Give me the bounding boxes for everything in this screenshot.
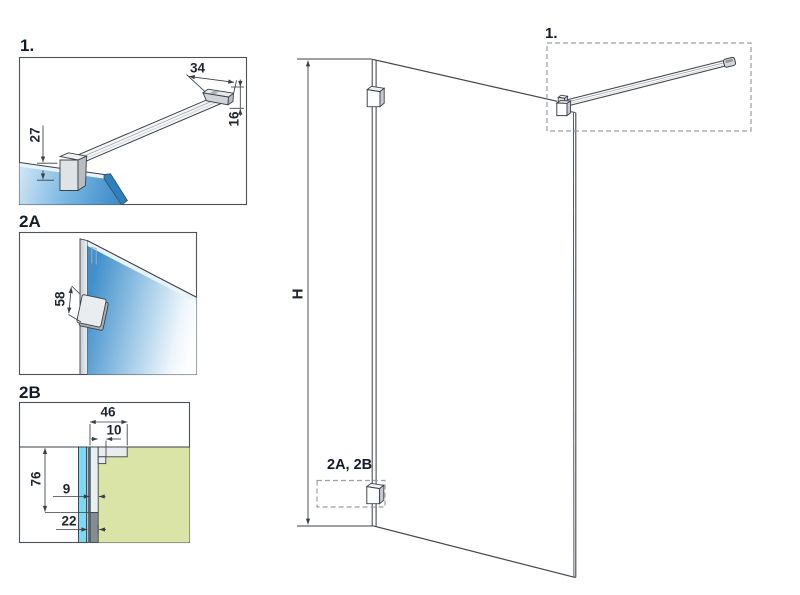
main-callout-1-label: 1. (545, 26, 558, 41)
upper-wall-bracket (367, 86, 384, 106)
glass-section (79, 447, 87, 543)
detail-2b-box (20, 403, 190, 543)
dim-text-22: 22 (61, 514, 76, 528)
drawing-canvas (0, 0, 800, 595)
detail-1-box (20, 58, 247, 206)
lower-wall-bracket (367, 483, 384, 503)
detail-2a-label: 2A (19, 213, 41, 230)
detail-2a-box (20, 233, 197, 375)
dim-text-76: 76 (29, 471, 43, 486)
dim-text-46: 46 (100, 405, 115, 419)
wall-bracket-plate (76, 294, 109, 330)
dim-text-10: 10 (106, 423, 121, 437)
dim-text-27: 27 (28, 127, 42, 142)
dim-text-58: 58 (53, 291, 67, 306)
dim-text-16: 16 (227, 111, 241, 126)
dim-text-34: 34 (190, 61, 205, 75)
detail-1-label: 1. (20, 37, 34, 54)
shower-panel-technical-drawing: 1. 2A 2B 1. 2A, 2B 34 16 27 58 46 10 76 … (0, 0, 800, 595)
main-callout-2a-2b-label: 2A, 2B (327, 458, 372, 473)
dim-text-H: H (291, 288, 306, 299)
dim-text-9: 9 (63, 482, 71, 496)
detail-2b-label: 2B (19, 384, 41, 401)
